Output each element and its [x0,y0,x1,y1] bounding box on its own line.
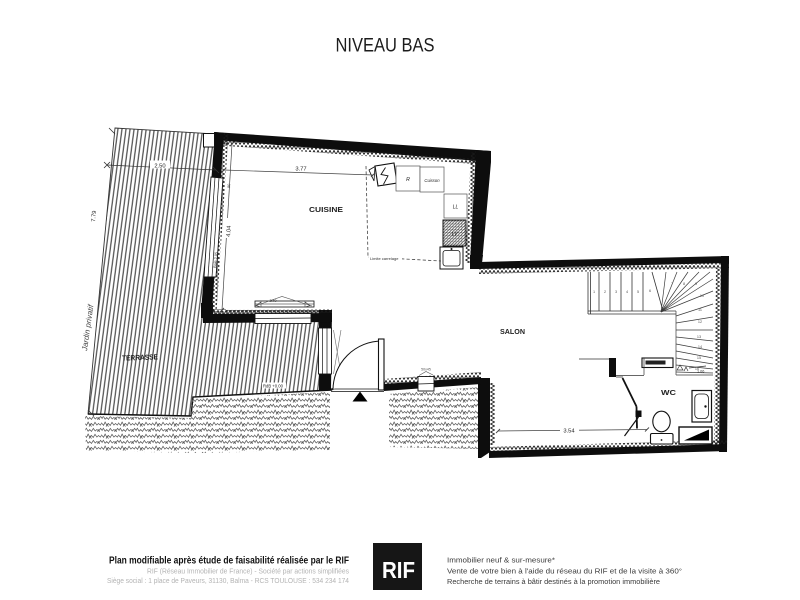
svg-text:10: 10 [700,294,704,298]
svg-text:2: 2 [604,290,606,294]
svg-text:7: 7 [671,282,673,286]
svg-text:SALON: SALON [500,327,525,336]
svg-text:11: 11 [698,308,702,312]
svg-text:7.79: 7.79 [91,210,98,222]
svg-text:3.77: 3.77 [295,167,306,173]
svg-text:14: 14 [698,345,702,349]
svg-text:9: 9 [695,282,697,286]
svg-text:12: 12 [698,320,702,324]
svg-text:5: 5 [637,290,639,294]
svg-text:3: 3 [615,290,617,294]
svg-text:Recherche de terrains à bâtir: Recherche de terrains à bâtir destinés à… [447,577,660,586]
svg-text:6: 6 [649,289,651,293]
svg-text:4.04: 4.04 [226,225,233,237]
svg-text:15: 15 [697,356,701,360]
svg-text:Cuisson: Cuisson [424,178,440,183]
svg-text:LL: LL [453,205,459,211]
svg-text:50x45: 50x45 [421,368,431,372]
svg-text:R: R [406,177,410,183]
svg-text:Immobilier neuf & sur-mesure*: Immobilier neuf & sur-mesure* [447,556,555,565]
svg-text:13: 13 [697,335,701,339]
svg-text:RIF (Réseau Immobilier de Fra: RIF (Réseau Immobilier de France) - Soci… [147,569,350,576]
svg-text:Plan modifiable après étude de: Plan modifiable après étude de faisabili… [109,556,349,567]
svg-text:4: 4 [626,290,628,294]
svg-text:NIVEAU BAS: NIVEAU BAS [336,35,435,57]
svg-text:90: 90 [227,184,231,189]
svg-text:2.40: 2.40 [270,299,277,303]
svg-text:1.06: 1.06 [697,370,704,374]
svg-text:Vente de votre bien à l'aide d: Vente de votre bien à l'aide du réseau d… [447,567,682,576]
svg-text:TERRASSE: TERRASSE [122,352,158,362]
svg-text:LV: LV [452,232,459,238]
svg-text:Siège social : 1 place de Pave: Siège social : 1 place de Paveurs, 31130… [107,578,349,585]
svg-text:CUISINE: CUISINE [309,205,343,214]
svg-text:RIF: RIF [382,557,415,583]
svg-text:Limite carrelage: Limite carrelage [370,256,399,261]
svg-text:3.54: 3.54 [563,429,575,435]
svg-text:8: 8 [683,282,685,286]
svg-text:2.50: 2.50 [154,164,165,170]
svg-text:1: 1 [593,290,595,294]
svg-text:RdB +0.00: RdB +0.00 [263,384,284,389]
svg-text:WC: WC [661,388,677,397]
